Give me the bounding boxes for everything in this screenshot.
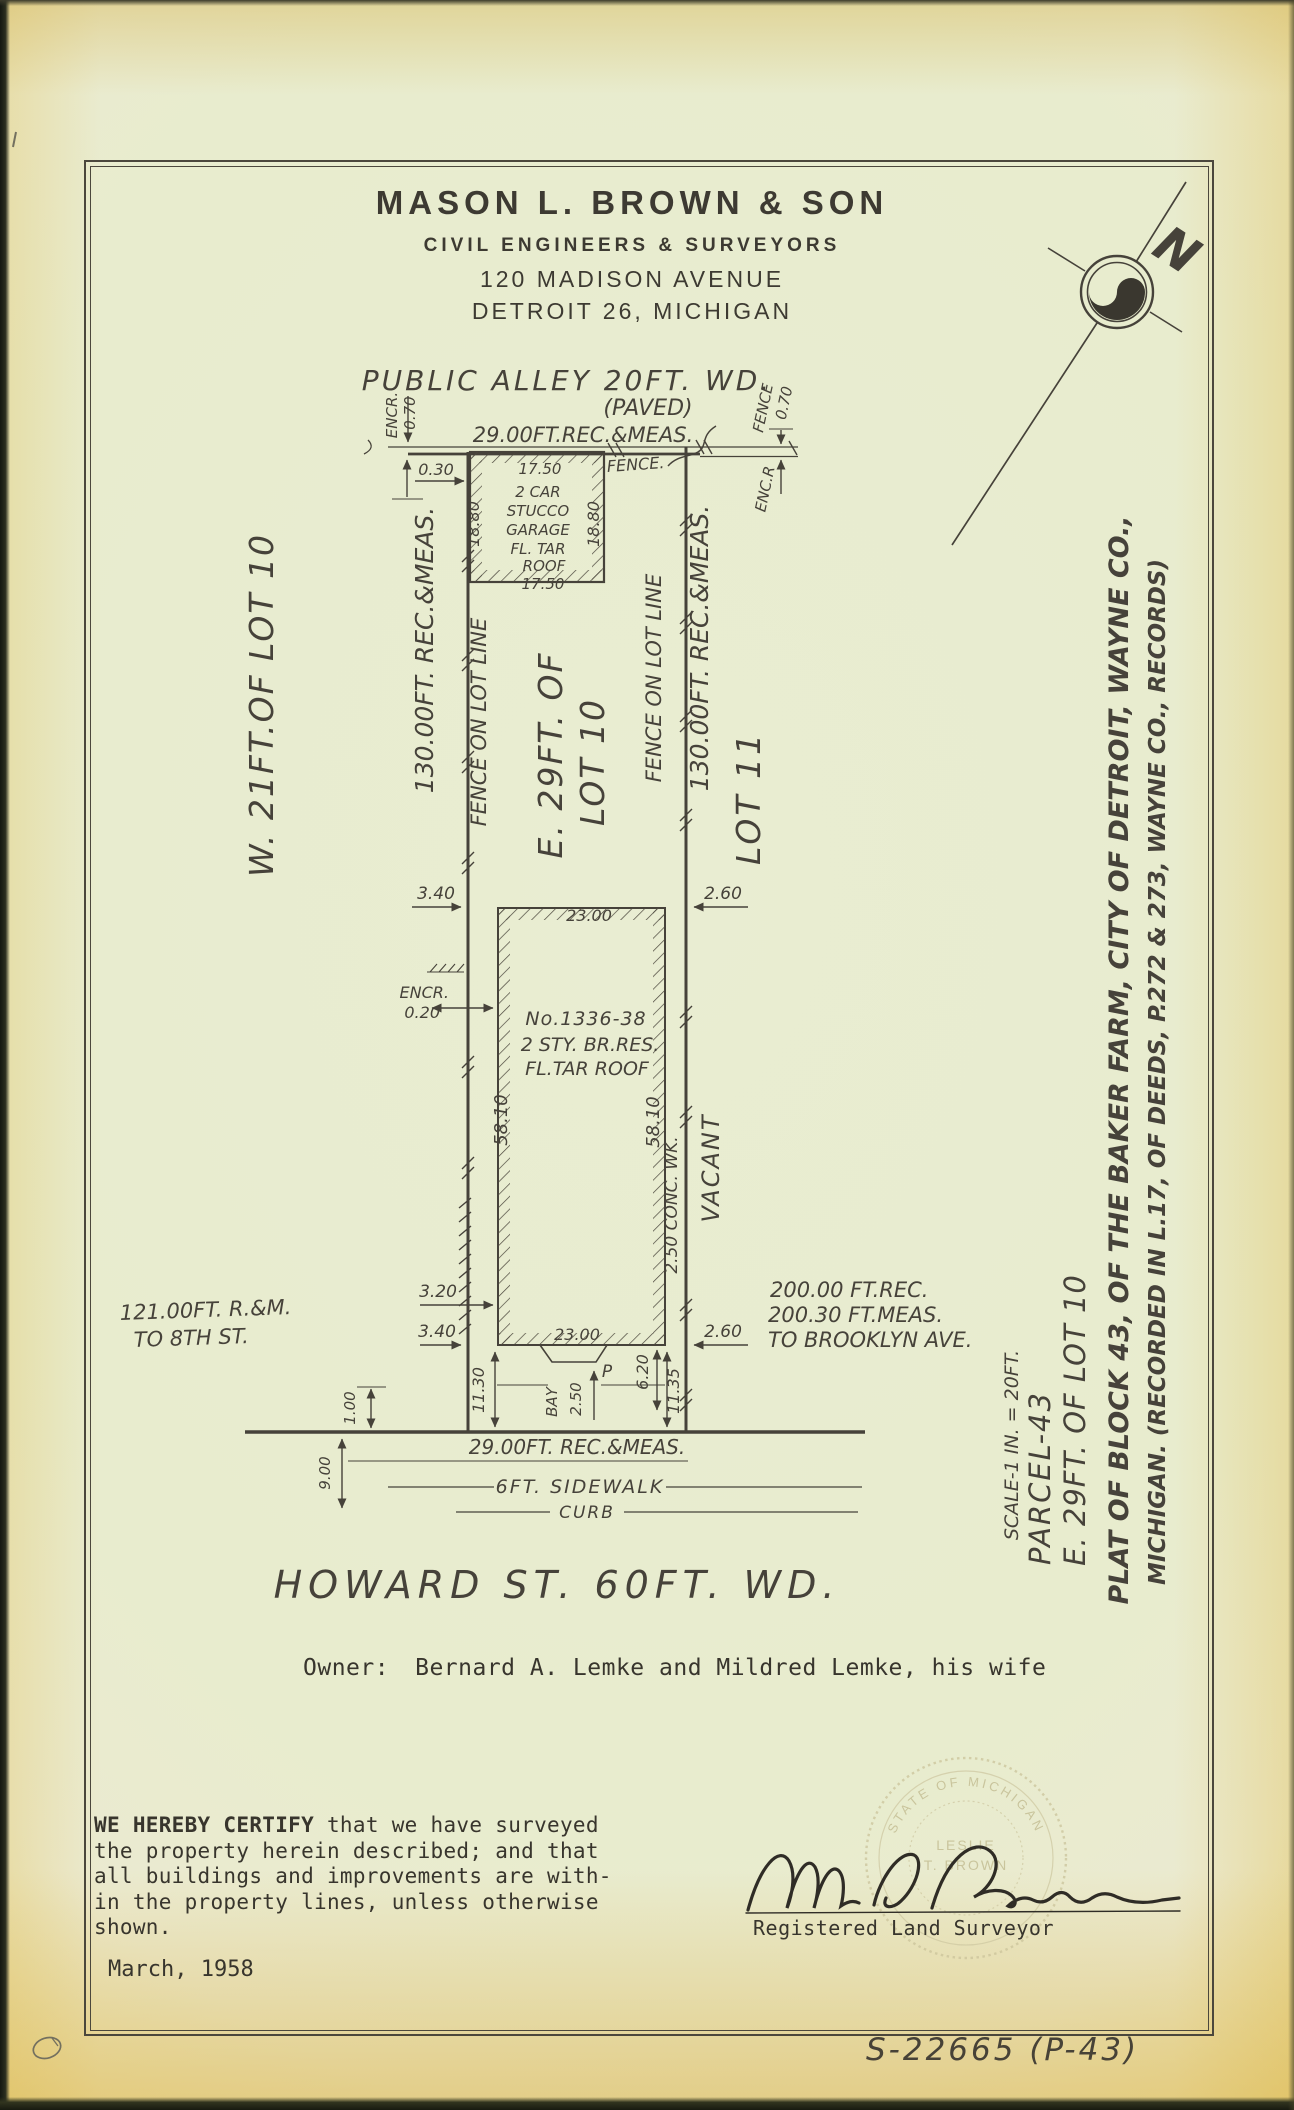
encr-west-label: ENCR. [400, 983, 449, 1002]
garage-width-top: 17.50 [519, 460, 562, 478]
encr-ne-label: ENC.R [751, 464, 778, 513]
west-parcel-label: W. 21FT.OF LOT 10 [242, 533, 281, 877]
seal-arc-text: STATE OF MICHIGAN [884, 1774, 1047, 1836]
garage-offset: 0.30 [418, 460, 454, 479]
house-roof-note: FL.TAR ROOF [525, 1058, 650, 1080]
dim-nw: 3.40 [417, 884, 455, 904]
alley-paved: (PAVED) [603, 396, 692, 421]
garage-width-bottom: 17.50 [522, 575, 565, 593]
dim-sw-lower: 3.40 [418, 1322, 456, 1342]
garage-label-2: STUCCO [507, 502, 570, 520]
encr-west-value: 0.20 [404, 1003, 440, 1022]
alley-rear-dimension: 29.00FT.REC.&MEAS. [473, 423, 694, 447]
plat-title-line1: PLAT OF BLOCK 43, OF THE BAKER FARM, CIT… [1104, 515, 1135, 1604]
parcel-label-line1: E. 29FT. OF [531, 652, 570, 859]
dim-south-left: 11.30 [469, 1367, 488, 1413]
parcel-number: PARCEL-43 [1023, 1391, 1057, 1565]
encr-nw-label: ENCR. [383, 392, 401, 438]
fence-label: FENCE. [606, 453, 665, 476]
dim-ne: 2.60 [704, 884, 742, 904]
house-depth-left: 58.10 [491, 1094, 512, 1146]
curb-label: CURB [559, 1503, 615, 1523]
east-depth-dimension: 130.00FT. REC.&MEAS. [685, 505, 714, 791]
alley-title: PUBLIC ALLEY 20FT. WD. [362, 364, 772, 397]
certification-block: WE HEREBY CERTIFY that we have surveyed … [94, 1813, 612, 1941]
lot11-label: LOT 11 [729, 731, 768, 865]
pencil-oval-mark [31, 2034, 64, 2062]
certification-date: March, 1958 [108, 1957, 254, 1982]
ref-west-line2: TO 8TH ST. [133, 1324, 249, 1352]
owner-label: Owner: [303, 1655, 389, 1681]
plat-title-line2: MICHIGAN. (RECORDED IN L.17, OF DEEDS, P… [1145, 559, 1171, 1585]
scale-note: SCALE-1 IN. = 20FT. [1001, 1350, 1023, 1540]
boundary-lines [245, 447, 865, 1512]
scanned-survey-document: MASON L. BROWN & SON CIVIL ENGINEERS & S… [0, 0, 1294, 2110]
pencil-marks [13, 132, 63, 2062]
garage-label-4: FL. TAR [511, 540, 566, 558]
bay-window-outline [540, 1345, 607, 1362]
garage-depth-right: 18.80 [584, 501, 603, 547]
garage-label-3: GARAGE [506, 521, 570, 539]
dim-sw-upper: 3.20 [419, 1282, 457, 1302]
owner-line: Owner:Bernard A. Lemke and Mildred Lemke… [303, 1655, 1046, 1681]
bay-label: BAY [543, 1385, 561, 1417]
owner-name: Bernard A. Lemke and Mildred Lemke, his … [415, 1655, 1046, 1681]
dim-porch-depth: 6.20 [633, 1354, 652, 1390]
east-fence-note: FENCE ON LOT LINE [642, 573, 666, 782]
compass-needle-line [952, 182, 1186, 545]
vacant-label: VACANT [697, 1113, 725, 1222]
north-label: N [1143, 214, 1210, 285]
signer-title: Registered Land Surveyor [753, 1916, 1054, 1940]
garage-label-5: ROOF [523, 557, 566, 575]
dim-se: 2.60 [704, 1322, 742, 1342]
street-name: HOWARD ST. 60FT. WD. [274, 1563, 841, 1607]
parcel-label-line2: LOT 10 [573, 698, 612, 826]
north-compass: N [952, 182, 1210, 545]
bay-width: 2.50 [567, 1382, 585, 1415]
certification-line3: all buildings and improvements are with- [94, 1864, 612, 1890]
parcel-description: E. 29FT. OF LOT 10 [1058, 1274, 1092, 1566]
west-depth-dimension: 130.00FT. REC.&MEAS. [410, 507, 439, 793]
west-fence-note: FENCE ON LOT LINE [467, 617, 491, 826]
porch-label: P [602, 1362, 613, 1382]
ref-west-line1: 121.00FT. R.&M. [119, 1295, 291, 1325]
certification-line5: shown. [94, 1915, 612, 1941]
house-outline [498, 908, 665, 1362]
concrete-walk-note: 2.50 CONC. WK. [662, 1136, 682, 1273]
house-description: 2 STY. BR.RES. [521, 1034, 660, 1056]
certification-line2: the property herein described; and that [94, 1839, 612, 1865]
house-depth-right: 58.10 [643, 1096, 664, 1148]
plat-drawing: N [0, 0, 1294, 2110]
house-width-top: 23.00 [566, 906, 612, 925]
house-number: No.1336-38 [525, 1008, 646, 1030]
signature-line [746, 1911, 1180, 1913]
garage-label-1: 2 CAR [515, 483, 560, 501]
garage-depth-left: 18.80 [464, 501, 483, 547]
certification-line1: WE HEREBY CERTIFY that we have surveyed [94, 1813, 612, 1839]
fence-tick-marks [427, 440, 797, 1411]
pencil-tick-mark [13, 132, 16, 147]
house-width-bottom: 23.00 [554, 1325, 600, 1344]
dim-parkway: 9.00 [316, 1456, 334, 1489]
ref-east-line1: 200.00 FT.REC. [770, 1278, 928, 1302]
dim-front-offset: 1.00 [341, 1391, 359, 1424]
sidewalk-label: 6FT. SIDEWALK [496, 1476, 665, 1498]
front-dimension: 29.00FT. REC.&MEAS. [469, 1435, 685, 1459]
svg-text:STATE OF MICHIGAN: STATE OF MICHIGAN [884, 1774, 1047, 1836]
certification-emphasis: WE HEREBY CERTIFY [94, 1813, 314, 1837]
dim-south-right: 11.35 [664, 1368, 683, 1414]
document-id: S-22665 (P-43) [866, 2032, 1139, 2068]
ref-east-line2: 200.30 FT.MEAS. [768, 1303, 943, 1327]
encr-nw-value: 0.70 [401, 396, 419, 429]
ref-east-line3: TO BROOKLYN AVE. [768, 1328, 972, 1352]
certification-line4: in the property lines, unless otherwise [94, 1890, 612, 1916]
